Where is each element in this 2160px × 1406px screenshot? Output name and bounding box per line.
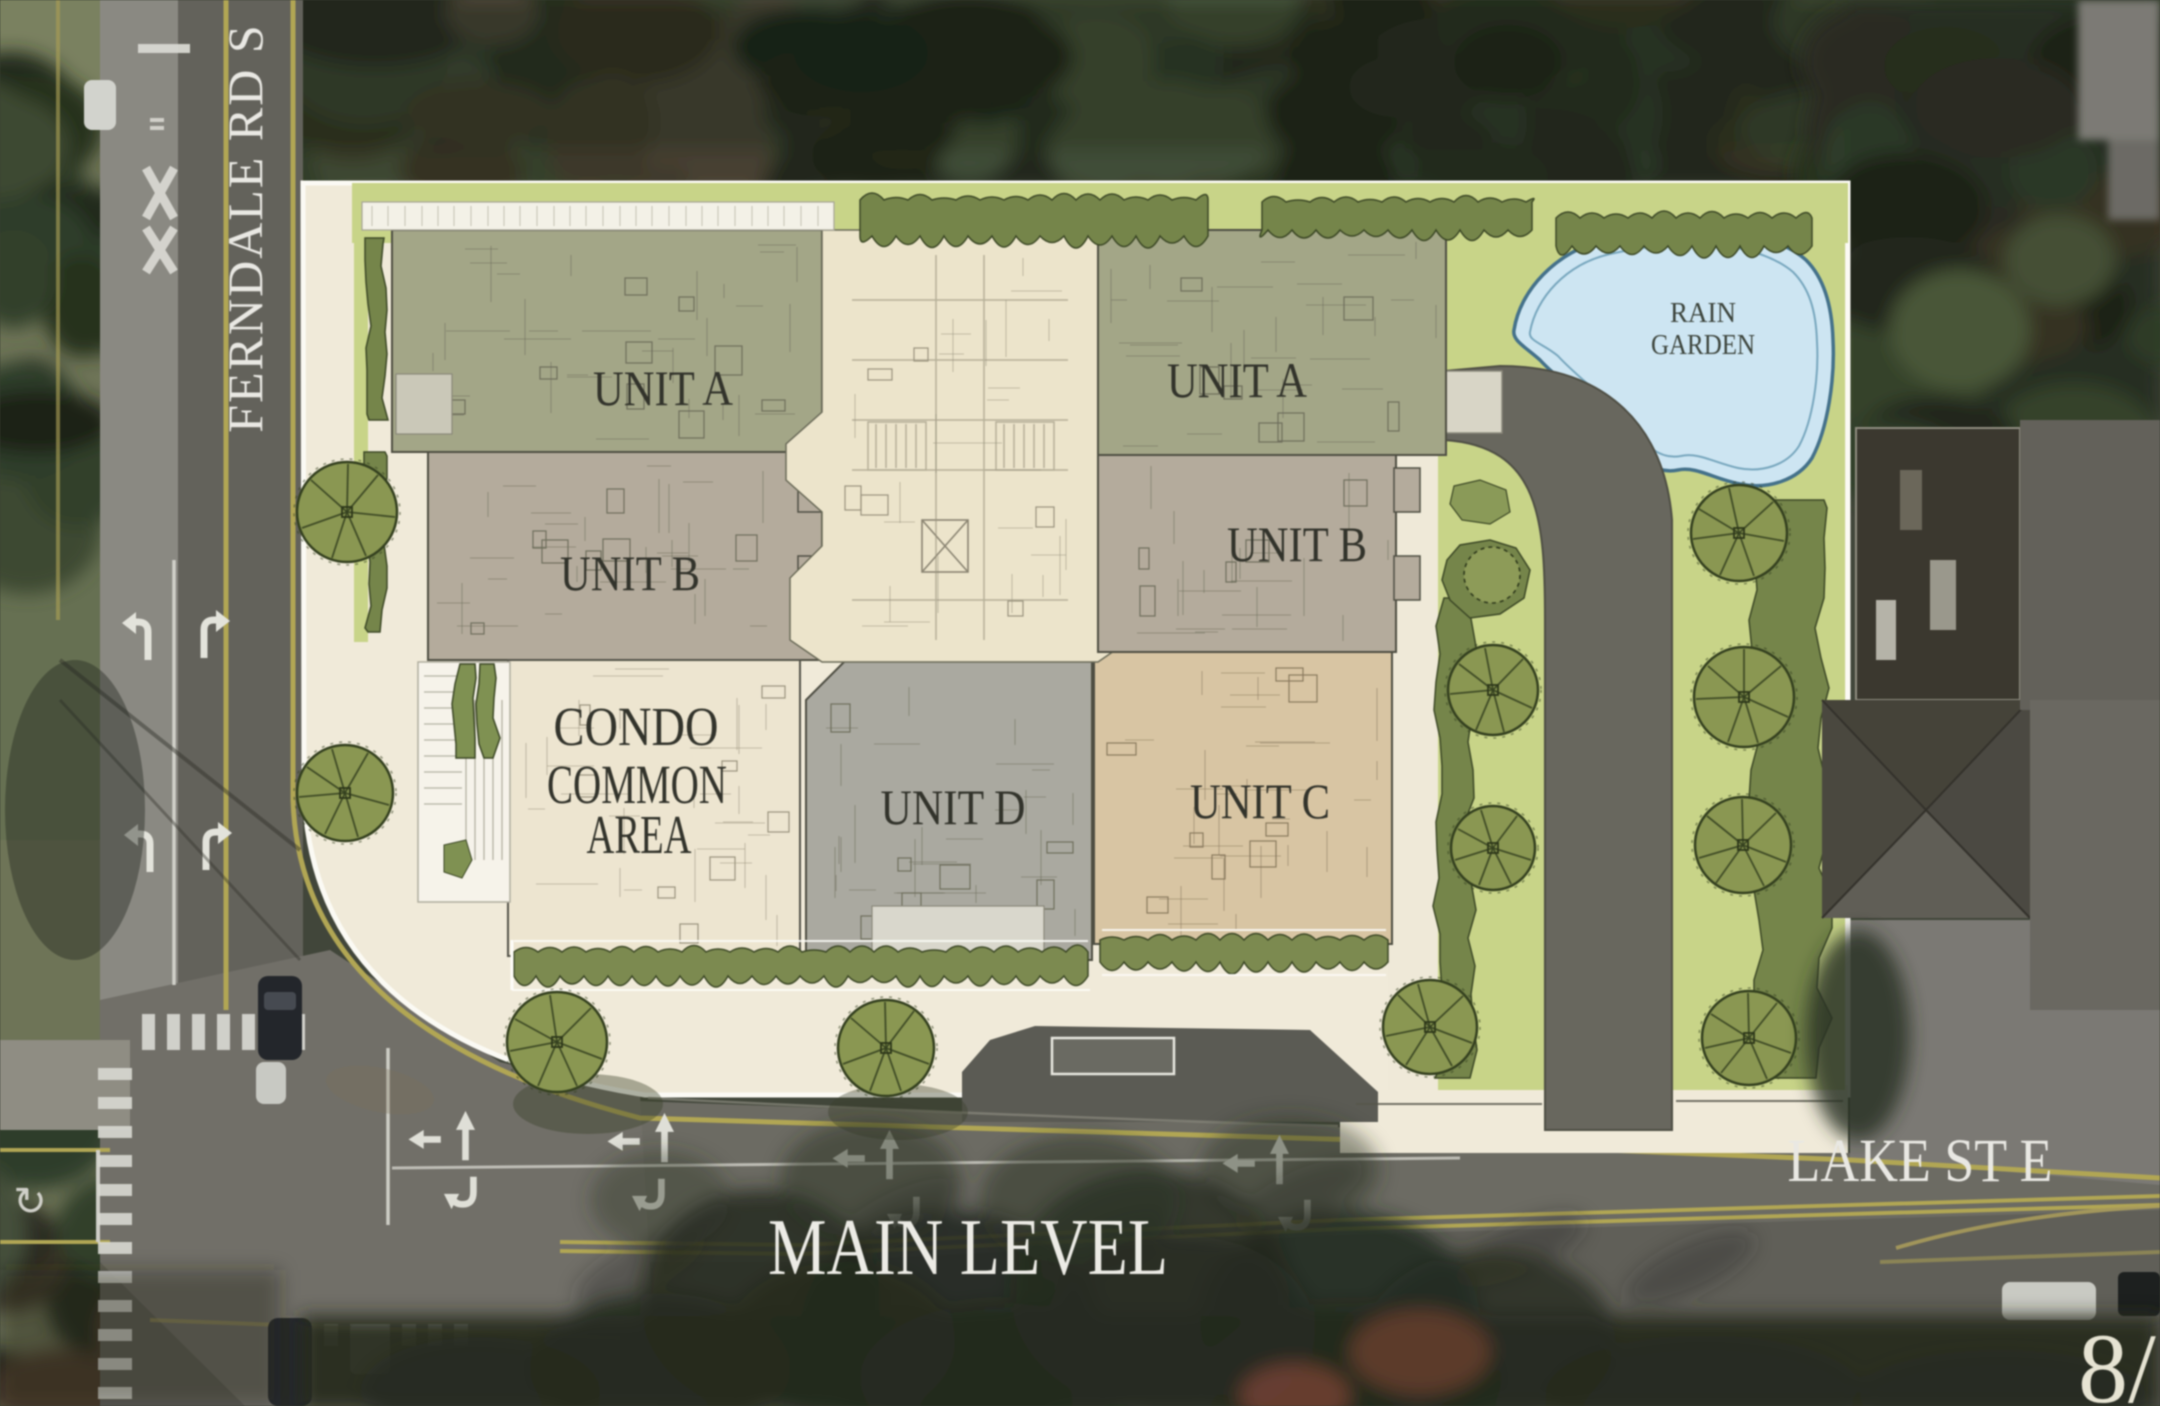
svg-text:RAIN: RAIN <box>1670 297 1736 329</box>
svg-text:8/1: 8/1 <box>2078 1313 2160 1406</box>
svg-text:CONDO: CONDO <box>554 696 719 757</box>
svg-text:UNIT B: UNIT B <box>1227 516 1367 572</box>
svg-text:MAIN LEVEL: MAIN LEVEL <box>768 1204 1168 1292</box>
svg-text:UNIT D: UNIT D <box>881 779 1026 835</box>
svg-text:UNIT B: UNIT B <box>560 545 700 601</box>
svg-text:UNIT A: UNIT A <box>1167 352 1307 408</box>
svg-text:UNIT C: UNIT C <box>1190 773 1330 829</box>
svg-text:↻: ↻ <box>13 1179 47 1224</box>
svg-text:GARDEN: GARDEN <box>1651 329 1755 361</box>
svg-text:UNIT A: UNIT A <box>593 360 733 416</box>
svg-text:FERNDALE RD S: FERNDALE RD S <box>217 23 273 432</box>
svg-text:AREA: AREA <box>587 804 692 865</box>
svg-text:LAKE ST E: LAKE ST E <box>1788 1128 2053 1195</box>
